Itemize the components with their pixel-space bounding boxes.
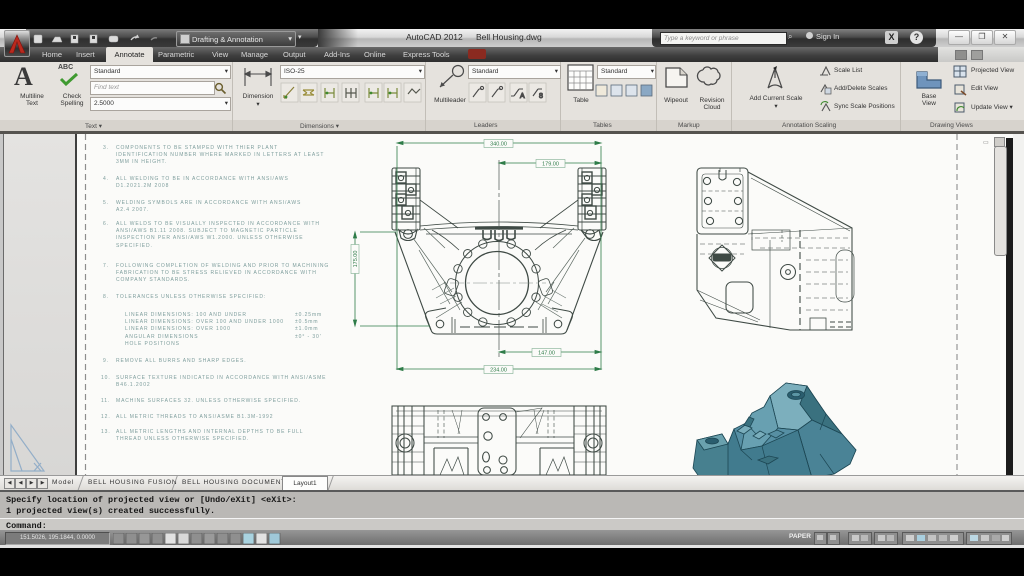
svg-text:147.00: 147.00 (538, 351, 555, 357)
svg-text:A: A (520, 93, 525, 100)
svg-text:179.00: 179.00 (542, 162, 559, 168)
svg-text:175.00: 175.00 (353, 251, 359, 268)
svg-text:8: 8 (539, 93, 543, 100)
svg-text:234.00: 234.00 (490, 368, 507, 374)
svg-text:340.00: 340.00 (490, 142, 507, 148)
